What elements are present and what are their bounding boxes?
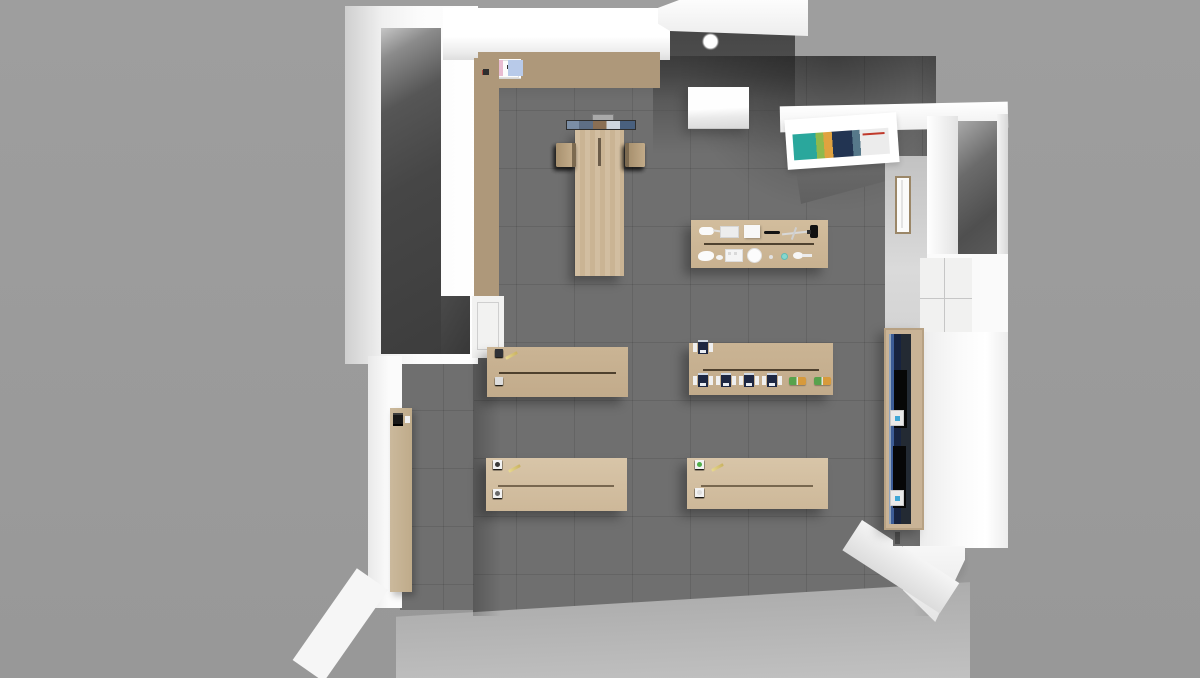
tray: [720, 226, 739, 238]
microscope-row-bottom: [693, 373, 831, 389]
poster-panel: [784, 112, 899, 170]
microscope: [693, 373, 713, 389]
lab-burner: [493, 460, 502, 469]
cable-slots: [598, 138, 601, 268]
experiment-kit: [495, 349, 503, 357]
bench-divider: [499, 372, 616, 374]
label-box: [890, 490, 904, 506]
instrument-station: [392, 413, 410, 428]
microscope-group: [693, 373, 782, 389]
poster-artwork: [792, 128, 890, 161]
microscope-boom: [782, 227, 808, 240]
chair: [625, 143, 645, 167]
left-wall-shelf: [474, 58, 499, 296]
alcove-right-wall: [997, 114, 1008, 258]
wall-bottom-right-block: [920, 332, 1008, 548]
round-dish: [747, 248, 762, 263]
lab-burner: [695, 460, 704, 469]
room-render-viewport[interactable]: [0, 0, 1200, 678]
lab-burner: [695, 488, 704, 497]
pipette: [764, 231, 780, 234]
bench-divider: [701, 485, 813, 487]
kit-bench: [487, 347, 628, 397]
microscope: [693, 340, 713, 356]
test-kit: [789, 377, 806, 385]
microscope: [716, 373, 736, 389]
counter-stations: [392, 413, 410, 585]
wall-left-diagonal: [293, 568, 388, 678]
door-handle: [893, 530, 902, 546]
storage-room-extension: [441, 296, 470, 354]
bench-divider: [703, 369, 819, 371]
pencil: [711, 463, 724, 472]
label-box: [890, 410, 904, 426]
right-wall-fill: [972, 254, 1008, 340]
test-kit: [814, 377, 831, 385]
wall-top-right-block: [658, 0, 808, 36]
microscope-bench: [689, 343, 833, 395]
right-wall-cabinets: [920, 258, 975, 334]
egg-model: [716, 255, 723, 260]
specimen-box: [725, 249, 743, 262]
door-vision-panel: [895, 176, 911, 234]
top-wall-shelves: [478, 52, 660, 88]
stopper: [769, 255, 773, 259]
wall-counter: [390, 408, 412, 592]
burner-bench-left: [486, 458, 627, 511]
pencil: [508, 464, 521, 473]
burner-bench-right: [687, 458, 828, 509]
lab-burner: [493, 489, 502, 498]
conference-table: [575, 130, 624, 276]
experiment-kit: [495, 377, 503, 385]
chair: [556, 143, 576, 167]
faucet: [810, 225, 818, 238]
alcove-interior: [958, 121, 997, 255]
microscope: [762, 373, 782, 389]
demo-bench: [691, 220, 828, 268]
bench-divider: [704, 243, 814, 245]
kidney-dish: [698, 251, 714, 261]
storage-room-floor: [381, 28, 441, 354]
alcove-left-wall: [927, 116, 958, 258]
bench-divider: [498, 485, 614, 487]
cable-slot: [598, 138, 601, 166]
wall-cabinet-box: [688, 87, 749, 129]
pencil: [505, 351, 518, 360]
microscope: [739, 373, 759, 389]
smartboard: [566, 120, 636, 130]
wash-bottle: [699, 227, 714, 235]
petri-dish-teal: [781, 253, 788, 260]
ceiling-light: [704, 33, 752, 49]
scoop: [793, 252, 803, 259]
storage-box: [744, 225, 760, 238]
kit-group: [785, 377, 831, 385]
blue-equipment-cabinet: [884, 328, 924, 530]
